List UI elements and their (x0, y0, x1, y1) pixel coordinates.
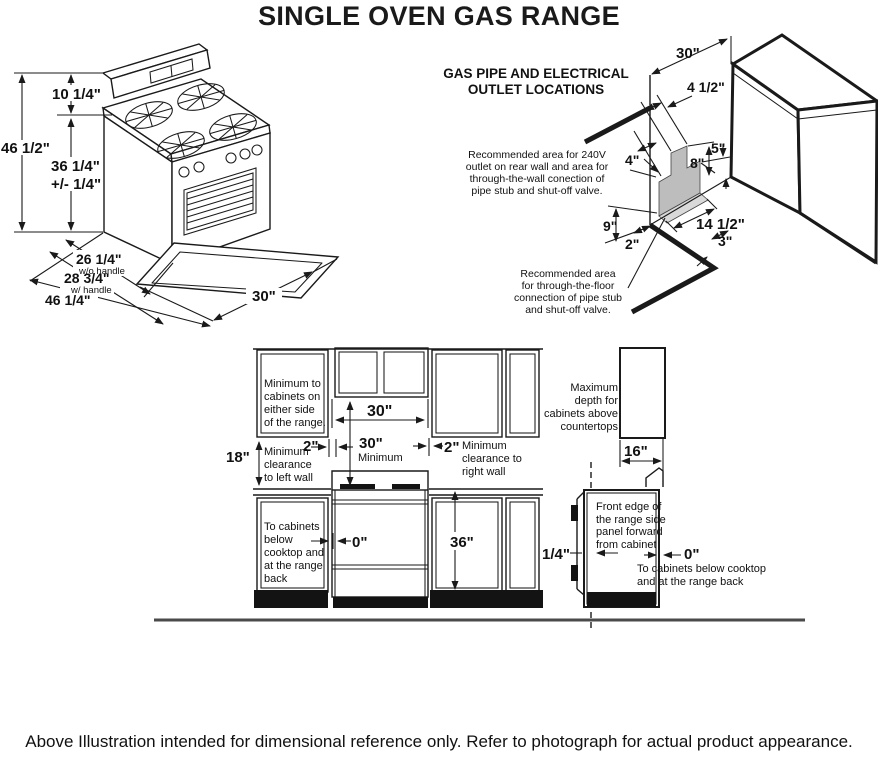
dim-cabinet-opening: 30" (367, 403, 392, 420)
dim-cabinet-to-counter: 18" (226, 449, 250, 466)
dim-step-height: 8" (690, 155, 704, 171)
drawer-handle-side (571, 565, 578, 581)
label-below-cooktop-side: To cabinets below cooktop and at the ran… (637, 563, 766, 589)
dim-cooktop-height-tol: +/- 1/4" (51, 176, 101, 193)
range-isometric-view (103, 44, 338, 298)
dim-floor-width: 3" (718, 233, 732, 249)
label-min-side-cabinets: Minimum to cabinets on either side of th… (264, 378, 326, 430)
installation-diagram-page: SINGLE OVEN GAS RANGE (0, 0, 878, 758)
dim-opening-width: 30" (676, 45, 700, 62)
gas-note-wall: Recommended area for 240V outlet on rear… (440, 149, 634, 197)
dim-vertical-clearance-note: Minimum (358, 452, 403, 464)
dim-depth-with-handle: 28 3/4" (64, 270, 110, 286)
floor-edge (632, 225, 714, 312)
dim-right-gap: 2" (444, 439, 459, 456)
gas-note-floor: Recommended area for through-the-floor c… (494, 268, 642, 316)
dim-total-height: 46 1/2" (1, 140, 50, 157)
footer-caption: Above Illustration intended for dimensio… (0, 732, 878, 752)
right-cabinet-isometric (731, 35, 877, 263)
toe-kick-right (430, 590, 543, 608)
dim-depth-no-handle: 26 1/4" (76, 251, 122, 267)
dim-backsplash-height: 10 1/4" (52, 86, 101, 103)
label-max-depth: Maximum depth for cabinets above counter… (526, 382, 618, 434)
upper-cabinet-right (432, 350, 502, 437)
dim-side-panel-offset: 1/4" (542, 546, 570, 563)
dim-range-width: 30" (252, 288, 276, 305)
upper-cabinet-side (620, 348, 665, 438)
range-side-backsplash (646, 468, 663, 487)
dim-vertical-clearance: 30" (359, 435, 383, 452)
dim-corner-height: 5" (711, 140, 725, 156)
upper-cabinet-middle (335, 348, 428, 397)
dim-outlet-width: 4 1/2" (687, 79, 725, 95)
label-min-left-wall: Minimum clearance to left wall (264, 446, 313, 485)
dim-left-height: 9" (603, 218, 617, 234)
range-base (333, 597, 428, 608)
dim-floor-length: 14 1/2" (696, 216, 745, 233)
door-handle-side (571, 505, 578, 521)
range-side-base (587, 592, 656, 607)
dim-corner-offset: 2" (625, 236, 639, 252)
range-front-view (332, 471, 428, 597)
gas-diagram-heading: GAS PIPE AND ELECTRICAL OUTLET LOCATIONS (437, 66, 635, 98)
toe-kick-left (254, 590, 328, 608)
diagram-artwork: 46 1/2" 10 1/4" 36 1/4" +/- 1/4" 26 1/4"… (0, 0, 878, 758)
dim-depth-door-open: 46 1/4" (45, 292, 91, 308)
label-below-cooktop: To cabinets below cooktop and at the ran… (264, 521, 324, 586)
dim-zero-back: 0" (684, 546, 699, 563)
dim-counter-height: 36" (450, 534, 474, 551)
left-wall (585, 108, 650, 142)
label-front-edge: Front edge of the range side panel forwa… (596, 501, 666, 551)
dim-cooktop-height: 36 1/4" (51, 158, 100, 175)
dim-zero-clearance: 0" (352, 534, 367, 551)
dim-upper-cabinet-depth: 16" (624, 443, 648, 460)
label-min-right-wall: Minimum clearance to right wall (462, 440, 522, 479)
